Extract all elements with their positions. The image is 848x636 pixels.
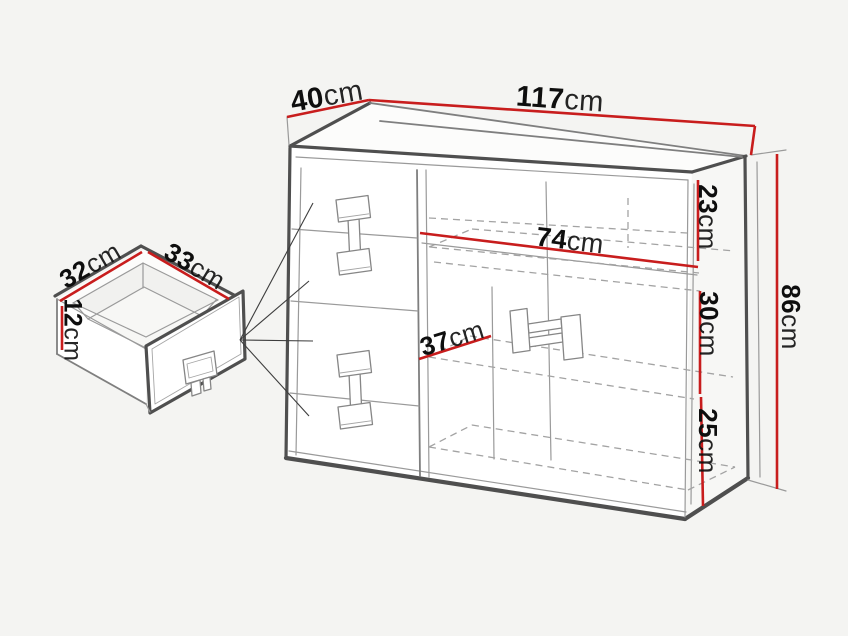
- dimension-unit: cm: [59, 327, 87, 361]
- dimension-unit: cm: [565, 225, 605, 259]
- dimension-value: 117: [515, 80, 565, 115]
- dimension-unit: cm: [776, 314, 806, 350]
- dimension-value: 12: [59, 298, 87, 327]
- drawer-slide-tab: [191, 380, 201, 396]
- dimension-label-middle-height: 30cm: [696, 291, 722, 357]
- dimension-unit: cm: [563, 84, 605, 119]
- dimension-label-lower-height: 25cm: [695, 408, 721, 474]
- dimension-unit: cm: [321, 74, 366, 112]
- dimension-unit: cm: [693, 438, 723, 474]
- dimension-value: 30: [694, 291, 724, 321]
- dimension-value: 23: [693, 184, 723, 214]
- dimension-value: 25: [693, 408, 723, 438]
- dimension-unit: cm: [694, 321, 724, 357]
- dimension-unit: cm: [693, 214, 723, 250]
- dimension-label-drawer-height: 12cm: [60, 298, 85, 361]
- dimension-label-total-height: 86cm: [778, 284, 804, 350]
- furniture-dimension-diagram: 40cm 117cm 74cm 37cm 23cm 30cm 25cm 86cm…: [0, 0, 848, 636]
- dimension-value: 74: [534, 221, 568, 255]
- drawer-slide-tab: [203, 377, 211, 391]
- dimension-label-upper-height: 23cm: [695, 184, 721, 250]
- dimension-value: 86: [776, 284, 806, 314]
- dimension-label-top-width: 117cm: [515, 82, 605, 117]
